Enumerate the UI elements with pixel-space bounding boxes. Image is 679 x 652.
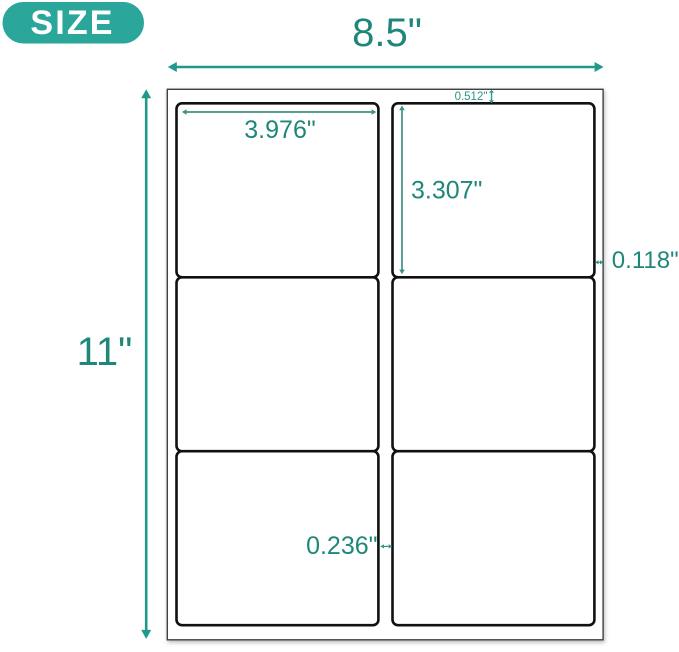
svg-text:0.118": 0.118" [612,247,679,274]
svg-text:11": 11" [77,330,133,374]
svg-text:3.307": 3.307" [411,176,482,204]
svg-text:SIZE: SIZE [30,4,114,42]
svg-text:8.5": 8.5" [352,11,422,55]
svg-text:0.512": 0.512" [455,91,488,103]
svg-text:0.236": 0.236" [306,532,377,560]
svg-text:3.976": 3.976" [244,116,315,144]
